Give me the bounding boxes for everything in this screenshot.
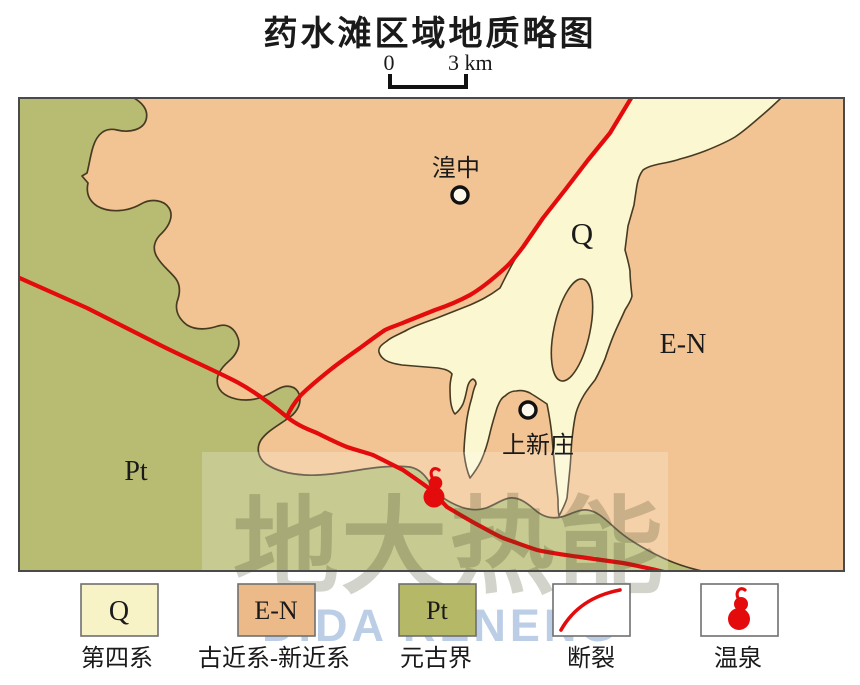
scale-zero-label: 0 [374, 50, 404, 76]
legend-symbol-proterozoic: Pt [426, 596, 448, 625]
town-marker-huangzhong [452, 187, 468, 203]
unit-label-quaternary: Q [571, 216, 593, 251]
page-title: 药水滩区域地质略图 [0, 6, 860, 55]
scale-bar-bracket [388, 74, 468, 89]
legend-swatch-paleogene-neogene: E-N [237, 583, 316, 637]
legend-symbol-quaternary: Q [109, 596, 129, 627]
legend-swatch-fault [552, 583, 631, 637]
scale-distance-label: 3 km [448, 50, 518, 76]
geological-map-page: 药水滩区域地质略图 0 3 km 湟中 上新庄 [0, 0, 860, 685]
legend-swatch-spring [700, 583, 779, 637]
town-marker-shangxinzhuang [520, 402, 536, 418]
town-label-shangxinzhuang: 上新庄 [502, 432, 574, 459]
legend-swatch-quaternary: Q [80, 583, 159, 637]
town-label-huangzhong: 湟中 [432, 155, 480, 182]
map-canvas: 湟中 上新庄 Q E-N Pt [18, 97, 845, 572]
legend-label-spring: 温泉 [638, 638, 838, 673]
unit-label-paleogene-neogene: E-N [660, 329, 707, 360]
legend-symbol-paleogene-neogene: E-N [254, 596, 298, 625]
unit-label-proterozoic: Pt [124, 456, 148, 487]
legend-swatch-proterozoic: Pt [398, 583, 477, 637]
